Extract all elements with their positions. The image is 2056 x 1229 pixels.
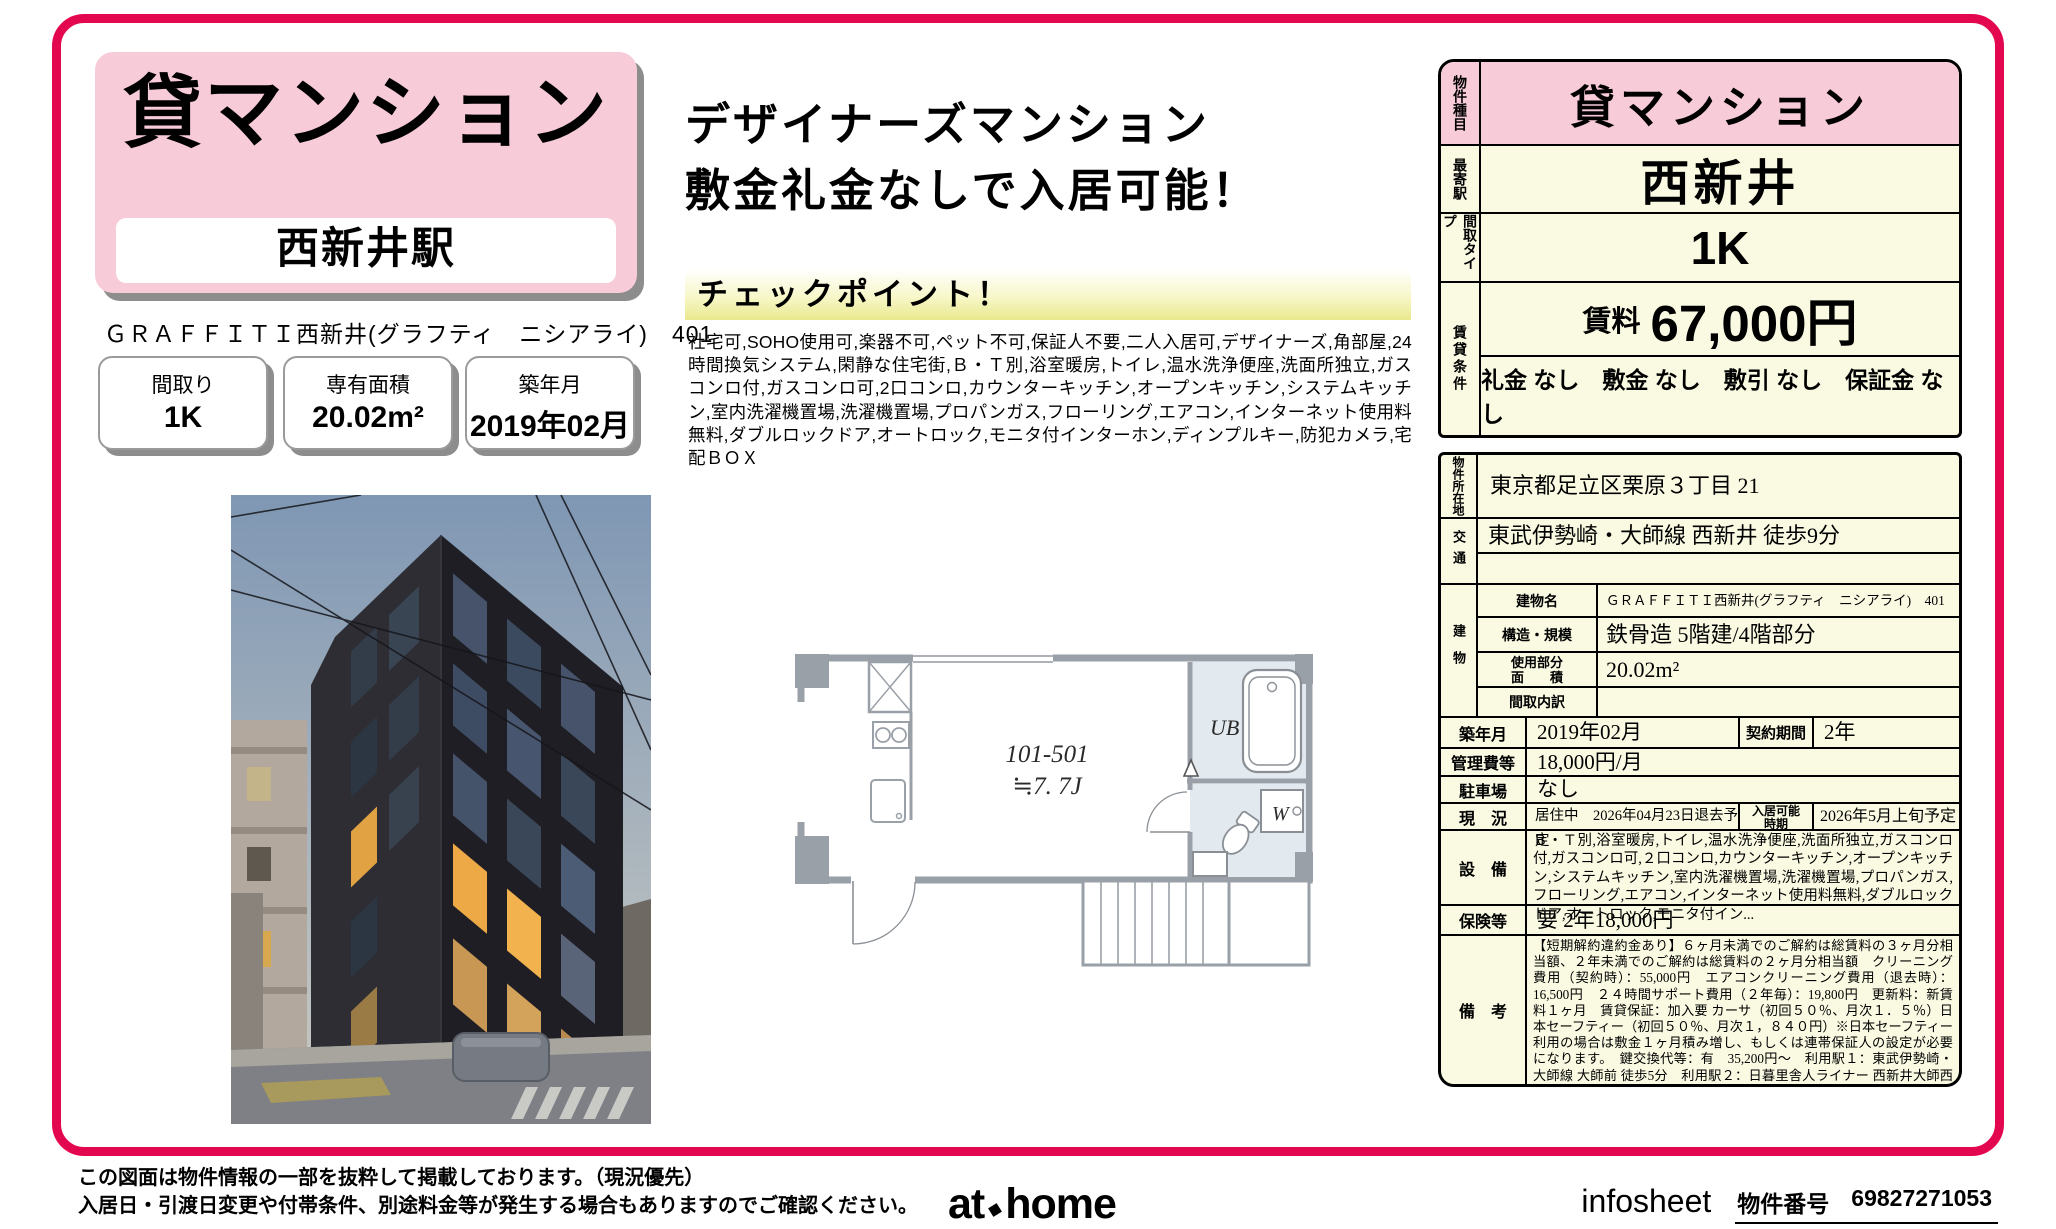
detail-building-name: ＧＲＡＦＦＩＴＩ西新井(グラフティ ニシアライ) 401 bbox=[1598, 585, 1959, 618]
detail-label-parking: 駐車場 bbox=[1441, 777, 1527, 804]
property-number-value: 69827271053 bbox=[1851, 1185, 1992, 1219]
station-name-box: 西新井駅 bbox=[116, 218, 616, 283]
detail-label-contract: 契約期間 bbox=[1738, 718, 1814, 749]
detail-label-transport: 交通 bbox=[1441, 519, 1478, 585]
spec-label: 築年月 bbox=[467, 369, 633, 399]
detail-label-notes: 備 考 bbox=[1441, 936, 1527, 1084]
detail-area: 20.02m² bbox=[1598, 653, 1959, 688]
summary-label-conditions: 賃貸条件 bbox=[1441, 283, 1481, 435]
rent-value: 67,000円 bbox=[1651, 282, 1858, 356]
detail-location: 東京都足立区栗原３丁目 21 bbox=[1478, 455, 1959, 519]
promo-headline-line1: デザイナーズマンション bbox=[685, 92, 1260, 158]
summary-label-type: 物件種目 bbox=[1441, 62, 1481, 146]
detail-structure: 鉄骨造 5階建/4階部分 bbox=[1598, 618, 1959, 653]
detail-label-fee: 管理費等 bbox=[1441, 749, 1527, 777]
infosheet-block: infosheet 物件番号 69827271053 bbox=[1581, 1183, 1998, 1224]
feature-list: 社宅可,SOHO使用可,楽器不可,ペット不可,保証人不要,二人入居可,デザイナー… bbox=[688, 331, 1412, 470]
detail-label-equipment: 設 備 bbox=[1441, 831, 1527, 906]
detail-notes: 【短期解約違約金あり】６ヶ月未満でのご解約は総賃料の３ヶ月分相当額、２年未満での… bbox=[1527, 936, 1959, 1084]
disclaimer-line2: 入居日・引渡日変更や付帯条件、別途料金等が発生する場合もありますのでご確認くださ… bbox=[78, 1192, 918, 1220]
summary-table: 物件種目 貸マンション 最寄駅 西新井 間取タイプ 1K 賃貸条件 賃料 67,… bbox=[1438, 59, 1962, 438]
station-name: 西新井駅 bbox=[276, 225, 456, 273]
detail-transport2 bbox=[1478, 554, 1959, 585]
detail-label-area: 使用部分 面 積 bbox=[1478, 653, 1598, 688]
detail-equipment: Ｂ・Ｔ別,浴室暖房,トイレ,温水洗浄便座,洗面所独立,ガスコンロ付,ガスコンロ可… bbox=[1527, 831, 1959, 906]
kitchen bbox=[869, 662, 911, 822]
spec-box-built: 築年月 2019年02月 bbox=[465, 356, 635, 450]
bath-label: UB bbox=[1210, 715, 1239, 740]
floor-plan: 101-501 ≒7. 7J UB W bbox=[795, 640, 1355, 1120]
rent-label: 賃料 bbox=[1582, 298, 1640, 340]
detail-label-building: 建物 bbox=[1441, 585, 1478, 718]
summary-value-type: 貸マンション bbox=[1481, 62, 1959, 146]
promo-headline-line2: 敷金礼金なしで入居可能！ bbox=[685, 158, 1260, 224]
logo-mark-icon bbox=[988, 1203, 1002, 1217]
property-number: 物件番号 69827271053 bbox=[1735, 1185, 1998, 1224]
detail-label-built: 築年月 bbox=[1441, 718, 1527, 749]
spec-value: 2019年02月 bbox=[467, 401, 633, 445]
promo-headline: デザイナーズマンション 敷金礼金なしで入居可能！ bbox=[685, 92, 1260, 224]
detail-label-location: 物件所在地 bbox=[1441, 455, 1478, 519]
detail-label-layout-detail: 間取内訳 bbox=[1478, 688, 1598, 718]
detail-movein: 2026年5月上旬予定 bbox=[1814, 804, 1959, 831]
stairs bbox=[1083, 881, 1229, 965]
detail-fee: 18,000円/月 bbox=[1527, 749, 1959, 777]
property-number-label: 物件番号 bbox=[1737, 1185, 1829, 1219]
detail-layout-detail bbox=[1598, 688, 1959, 718]
spec-label: 専有面積 bbox=[285, 369, 451, 399]
detail-label-structure: 構造・規模 bbox=[1478, 618, 1598, 653]
summary-label-station: 最寄駅 bbox=[1441, 146, 1481, 214]
summary-label-layout: 間取タイプ bbox=[1441, 214, 1481, 283]
stair-landing bbox=[1229, 881, 1309, 965]
unit-number-label: 101-501 bbox=[1005, 741, 1088, 768]
detail-contract: 2年 bbox=[1814, 718, 1959, 749]
property-flyer: 貸マンション 西新井駅 ＧＲＡＦＦＩＴＩ西新井(グラフティ ニシアライ) 401… bbox=[0, 0, 2056, 1222]
detail-label-building-name: 建物名 bbox=[1478, 585, 1598, 618]
detail-label-insurance: 保険等 bbox=[1441, 906, 1527, 936]
summary-value-layout: 1K bbox=[1481, 214, 1959, 283]
summary-value-station: 西新井 bbox=[1481, 146, 1959, 214]
washer-label: W bbox=[1272, 803, 1291, 825]
footer-disclaimer: この図面は物件情報の一部を抜粋して掲載しております。（現況優先） 入居日・引渡日… bbox=[78, 1164, 918, 1220]
spec-value: 20.02m² bbox=[285, 401, 451, 435]
detail-status: 居住中 2026年04月23日退去予定 bbox=[1527, 804, 1738, 831]
property-category: 貸マンション bbox=[95, 66, 637, 161]
property-category-box: 貸マンション 西新井駅 bbox=[95, 52, 637, 293]
spec-box-area: 専有面積 20.02m² bbox=[283, 356, 453, 450]
room-size-label: ≒7. 7J bbox=[1012, 773, 1083, 800]
property-name-line: ＧＲＡＦＦＩＴＩ西新井(グラフティ ニシアライ) 401 bbox=[104, 315, 713, 349]
detail-transport: 東武伊勢崎・大師線 西新井 徒歩9分 bbox=[1478, 519, 1959, 554]
basin bbox=[1193, 852, 1227, 876]
detail-label-movein: 入居可能 時期 bbox=[1738, 804, 1814, 831]
detail-label-status: 現 況 bbox=[1441, 804, 1527, 831]
checkpoint-banner: チェックポイント！ bbox=[685, 269, 1411, 320]
stove bbox=[873, 722, 909, 748]
detail-built: 2019年02月 bbox=[1527, 718, 1738, 749]
building-photo bbox=[231, 495, 651, 1124]
bathtub bbox=[1243, 670, 1301, 772]
spec-box-layout: 間取り 1K bbox=[98, 356, 268, 450]
detail-parking: なし bbox=[1527, 777, 1959, 804]
sink bbox=[871, 780, 905, 822]
detail-table: 物件所在地 東京都足立区栗原３丁目 21 交通 東武伊勢崎・大師線 西新井 徒歩… bbox=[1438, 452, 1962, 1087]
summary-conditions: 礼金 なし 敷金 なし 敷引 なし 保証金 なし bbox=[1481, 357, 1959, 433]
spec-label: 間取り bbox=[100, 369, 266, 399]
disclaimer-line1: この図面は物件情報の一部を抜粋して掲載しております。（現況優先） bbox=[78, 1164, 918, 1192]
infosheet-word: infosheet bbox=[1581, 1183, 1711, 1220]
detail-insurance: 要 2年18,000円 bbox=[1527, 906, 1959, 936]
summary-rent: 賃料 67,000円 bbox=[1481, 283, 1959, 357]
spec-value: 1K bbox=[100, 401, 266, 435]
